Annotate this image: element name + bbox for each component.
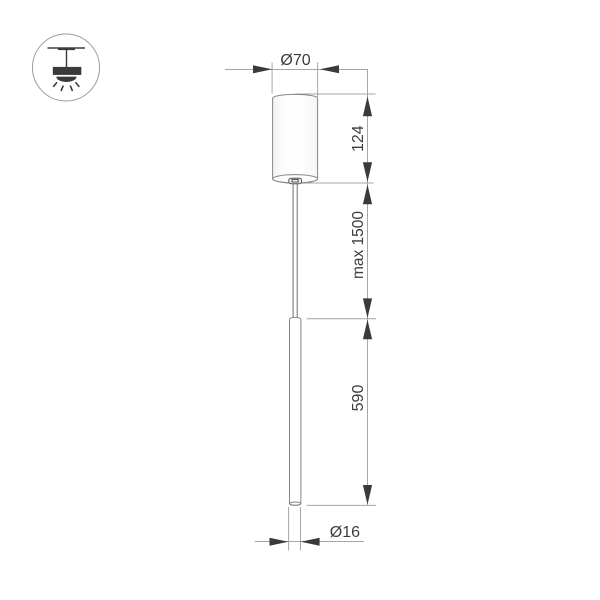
svg-text:124: 124 xyxy=(350,125,367,152)
svg-text:Ø70: Ø70 xyxy=(280,52,310,69)
svg-text:max 1500: max 1500 xyxy=(350,211,367,279)
svg-text:Ø16: Ø16 xyxy=(330,524,360,541)
svg-text:590: 590 xyxy=(350,385,367,412)
